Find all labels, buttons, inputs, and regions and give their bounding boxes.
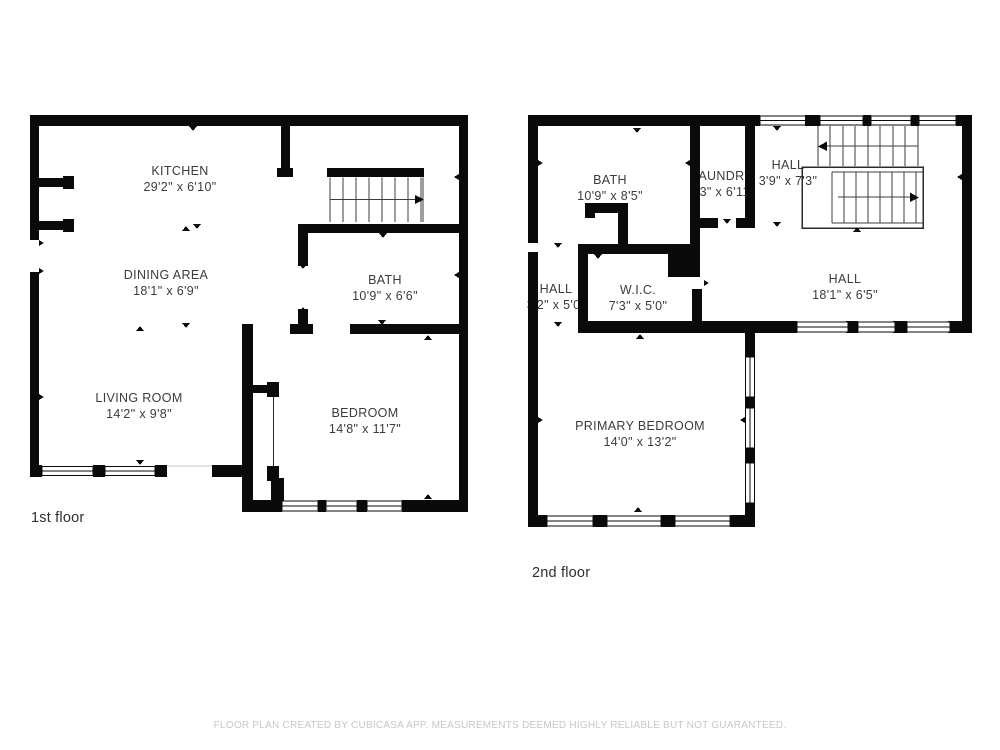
room-dims: 14'2" x 9'8" <box>95 406 182 422</box>
floor-plan-page: KITCHEN 29'2" x 6'10" DINING AREA 18'1" … <box>0 0 1000 750</box>
room-label-living-room: LIVING ROOM 14'2" x 9'8" <box>95 390 182 422</box>
room-name: BATH <box>352 272 418 288</box>
room-name: HALL <box>527 281 586 297</box>
room-label-bath-2: BATH 10'9" x 8'5" <box>577 172 643 204</box>
room-label-kitchen: KITCHEN 29'2" x 6'10" <box>143 163 216 195</box>
room-label-hall-upper: HALL 3'9" x 7'3" <box>759 157 818 189</box>
room-name: DINING AREA <box>124 267 208 283</box>
room-label-wic: W.I.C. 7'3" x 5'0" <box>609 282 668 314</box>
room-label-hall-left: HALL 3'2" x 5'0" <box>527 281 586 313</box>
room-dims: 14'8" x 11'7" <box>329 421 401 437</box>
room-dims: 7'3" x 5'0" <box>609 298 668 314</box>
room-dims: 3'9" x 7'3" <box>759 173 818 189</box>
room-label-hall-main: HALL 18'1" x 6'5" <box>812 271 878 303</box>
floor-label-second: 2nd floor <box>532 565 590 581</box>
room-label-primary-bedroom: PRIMARY BEDROOM 14'0" x 13'2" <box>575 418 705 450</box>
room-label-dining-area: DINING AREA 18'1" x 6'9" <box>124 267 208 299</box>
room-name: KITCHEN <box>143 163 216 179</box>
room-dims: 3'3" x 6'11" <box>690 184 755 200</box>
room-name: HALL <box>759 157 818 173</box>
room-label-bath-1: BATH 10'9" x 6'6" <box>352 272 418 304</box>
room-label-bedroom: BEDROOM 14'8" x 11'7" <box>329 405 401 437</box>
room-name: LAUNDRY <box>690 168 755 184</box>
room-name: BEDROOM <box>329 405 401 421</box>
room-name: BATH <box>577 172 643 188</box>
room-dims: 10'9" x 6'6" <box>352 288 418 304</box>
floor-label-first: 1st floor <box>31 510 84 526</box>
room-dims: 18'1" x 6'9" <box>124 283 208 299</box>
room-dims: 10'9" x 8'5" <box>577 188 643 204</box>
room-name: W.I.C. <box>609 282 668 298</box>
room-dims: 18'1" x 6'5" <box>812 287 878 303</box>
room-dims: 29'2" x 6'10" <box>143 179 216 195</box>
label-layer: KITCHEN 29'2" x 6'10" DINING AREA 18'1" … <box>0 0 1000 750</box>
room-name: LIVING ROOM <box>95 390 182 406</box>
disclaimer-text: FLOOR PLAN CREATED BY CUBICASA APP. MEAS… <box>214 720 787 731</box>
room-dims: 3'2" x 5'0" <box>527 297 586 313</box>
room-name: PRIMARY BEDROOM <box>575 418 705 434</box>
room-dims: 14'0" x 13'2" <box>575 434 705 450</box>
room-label-laundry: LAUNDRY 3'3" x 6'11" <box>690 168 755 200</box>
room-name: HALL <box>812 271 878 287</box>
